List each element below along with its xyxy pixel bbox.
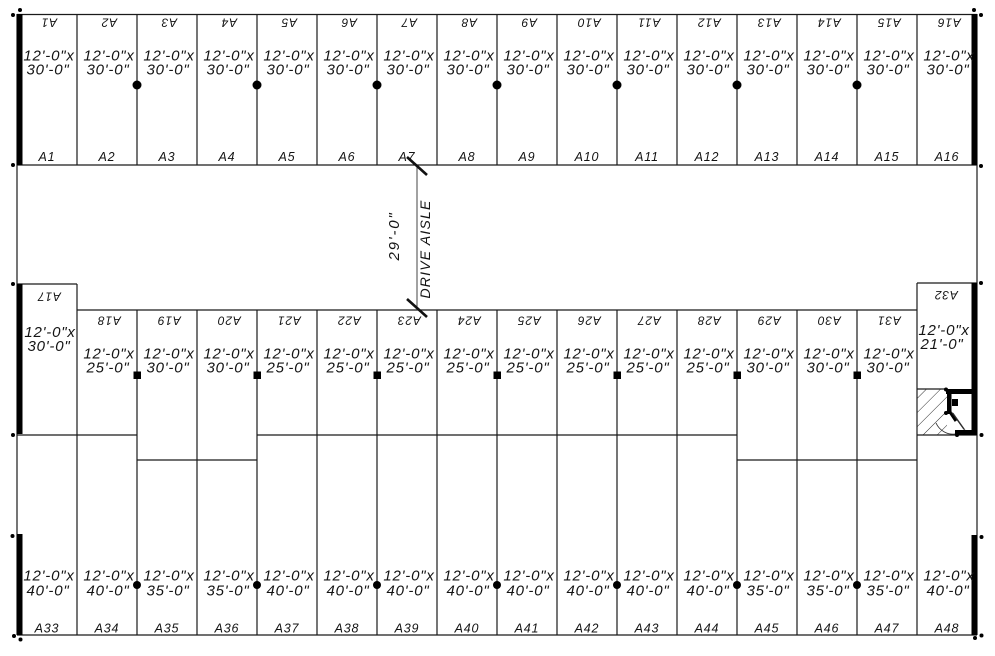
svg-text:A4: A4: [221, 16, 238, 30]
svg-text:A16: A16: [934, 150, 960, 164]
svg-text:A12: A12: [694, 150, 720, 164]
svg-text:A46: A46: [814, 622, 840, 636]
svg-text:30'-0": 30'-0": [26, 62, 69, 79]
svg-text:40'-0": 40'-0": [26, 583, 69, 600]
svg-text:25'-0": 25'-0": [85, 360, 129, 377]
svg-text:35'-0": 35'-0": [206, 583, 249, 600]
svg-text:40'-0": 40'-0": [86, 583, 129, 600]
svg-text:A26: A26: [577, 314, 602, 328]
svg-text:A30: A30: [817, 314, 842, 328]
svg-text:A44: A44: [694, 622, 720, 636]
svg-text:30'-0": 30'-0": [27, 338, 70, 355]
svg-text:A40: A40: [454, 622, 480, 636]
svg-text:A48: A48: [934, 622, 960, 636]
svg-text:A41: A41: [514, 622, 540, 636]
svg-text:A15: A15: [877, 16, 902, 30]
svg-text:30'-0": 30'-0": [866, 62, 909, 79]
svg-text:A25: A25: [517, 314, 542, 328]
svg-text:25'-0": 25'-0": [625, 360, 669, 377]
svg-text:A2: A2: [101, 16, 118, 30]
svg-text:25'-0": 25'-0": [385, 360, 429, 377]
svg-text:A45: A45: [754, 622, 780, 636]
svg-text:25'-0": 25'-0": [445, 360, 489, 377]
svg-text:A14: A14: [814, 150, 840, 164]
svg-text:29'-0": 29'-0": [386, 211, 403, 261]
svg-text:A16: A16: [937, 16, 962, 30]
svg-text:A8: A8: [458, 150, 476, 164]
svg-text:30'-0": 30'-0": [806, 62, 849, 79]
svg-text:A32: A32: [934, 288, 959, 302]
svg-text:A35: A35: [154, 622, 180, 636]
svg-text:A21: A21: [277, 314, 302, 328]
svg-text:30'-0": 30'-0": [206, 62, 249, 79]
svg-text:40'-0": 40'-0": [266, 583, 309, 600]
svg-text:40'-0": 40'-0": [626, 583, 669, 600]
svg-text:A27: A27: [637, 314, 662, 328]
svg-text:40'-0": 40'-0": [326, 583, 369, 600]
svg-text:A11: A11: [634, 150, 659, 164]
svg-text:A20: A20: [217, 314, 242, 328]
svg-text:40'-0": 40'-0": [506, 583, 549, 600]
svg-text:35'-0": 35'-0": [746, 583, 789, 600]
svg-text:30'-0": 30'-0": [266, 62, 309, 79]
svg-text:A9: A9: [521, 16, 538, 30]
svg-text:30'-0": 30'-0": [806, 360, 849, 377]
svg-text:A3: A3: [158, 150, 176, 164]
svg-text:A17: A17: [37, 290, 62, 304]
svg-text:A39: A39: [394, 622, 420, 636]
svg-text:35'-0": 35'-0": [866, 583, 909, 600]
svg-text:A43: A43: [634, 622, 660, 636]
svg-text:A12: A12: [697, 16, 722, 30]
svg-text:30'-0": 30'-0": [146, 62, 189, 79]
svg-text:A3: A3: [161, 16, 178, 30]
svg-text:A6: A6: [341, 16, 358, 30]
svg-text:30'-0": 30'-0": [626, 62, 669, 79]
svg-text:35'-0": 35'-0": [806, 583, 849, 600]
svg-text:A2: A2: [98, 150, 116, 164]
svg-text:30'-0": 30'-0": [686, 62, 729, 79]
svg-text:A5: A5: [278, 150, 296, 164]
svg-text:30'-0": 30'-0": [506, 62, 549, 79]
svg-text:DRIVE AISLE: DRIVE AISLE: [417, 199, 433, 298]
svg-text:A11: A11: [638, 16, 662, 30]
svg-text:A7: A7: [398, 150, 416, 164]
svg-text:30'-0": 30'-0": [746, 360, 789, 377]
svg-text:40'-0": 40'-0": [926, 583, 969, 600]
svg-text:A4: A4: [218, 150, 236, 164]
svg-text:40'-0": 40'-0": [446, 583, 489, 600]
svg-text:A13: A13: [754, 150, 780, 164]
svg-text:A31: A31: [877, 314, 902, 328]
svg-text:25'-0": 25'-0": [565, 360, 609, 377]
svg-text:A28: A28: [697, 314, 722, 328]
svg-text:A37: A37: [274, 622, 300, 636]
svg-text:A34: A34: [94, 622, 120, 636]
svg-text:A1: A1: [38, 150, 56, 164]
svg-text:A13: A13: [757, 16, 782, 30]
svg-text:30'-0": 30'-0": [866, 360, 909, 377]
svg-text:30'-0": 30'-0": [86, 62, 129, 79]
svg-text:A36: A36: [214, 622, 240, 636]
svg-text:A19: A19: [157, 314, 182, 328]
svg-text:A42: A42: [574, 622, 600, 636]
svg-text:30'-0": 30'-0": [566, 62, 609, 79]
svg-text:A24: A24: [457, 314, 482, 328]
svg-text:25'-0": 25'-0": [325, 360, 369, 377]
svg-text:35'-0": 35'-0": [146, 583, 189, 600]
svg-text:40'-0": 40'-0": [386, 583, 429, 600]
svg-text:A1: A1: [41, 16, 58, 30]
svg-text:40'-0": 40'-0": [566, 583, 609, 600]
svg-text:A29: A29: [757, 314, 782, 328]
svg-text:A8: A8: [461, 16, 478, 30]
svg-text:A10: A10: [574, 150, 600, 164]
svg-text:A14: A14: [817, 16, 842, 30]
svg-text:A33: A33: [34, 622, 60, 636]
svg-text:30'-0": 30'-0": [146, 360, 189, 377]
svg-text:A47: A47: [874, 622, 900, 636]
svg-text:40'-0": 40'-0": [686, 583, 729, 600]
svg-text:25'-0": 25'-0": [265, 360, 309, 377]
svg-text:A9: A9: [518, 150, 536, 164]
svg-text:A22: A22: [337, 314, 362, 328]
svg-text:A15: A15: [874, 150, 900, 164]
svg-text:30'-0": 30'-0": [926, 62, 969, 79]
svg-text:A38: A38: [334, 622, 360, 636]
svg-text:A18: A18: [97, 314, 122, 328]
svg-text:A6: A6: [338, 150, 356, 164]
svg-text:25'-0": 25'-0": [505, 360, 549, 377]
svg-text:30'-0": 30'-0": [746, 62, 789, 79]
svg-text:A5: A5: [281, 16, 298, 30]
svg-text:30'-0": 30'-0": [386, 62, 429, 79]
svg-text:A23: A23: [397, 314, 422, 328]
svg-text:21'-0": 21'-0": [919, 336, 963, 353]
svg-text:30'-0": 30'-0": [206, 360, 249, 377]
svg-text:25'-0": 25'-0": [685, 360, 729, 377]
svg-text:30'-0": 30'-0": [326, 62, 369, 79]
svg-text:30'-0": 30'-0": [446, 62, 489, 79]
svg-text:A7: A7: [400, 16, 418, 30]
svg-text:A10: A10: [577, 16, 602, 30]
